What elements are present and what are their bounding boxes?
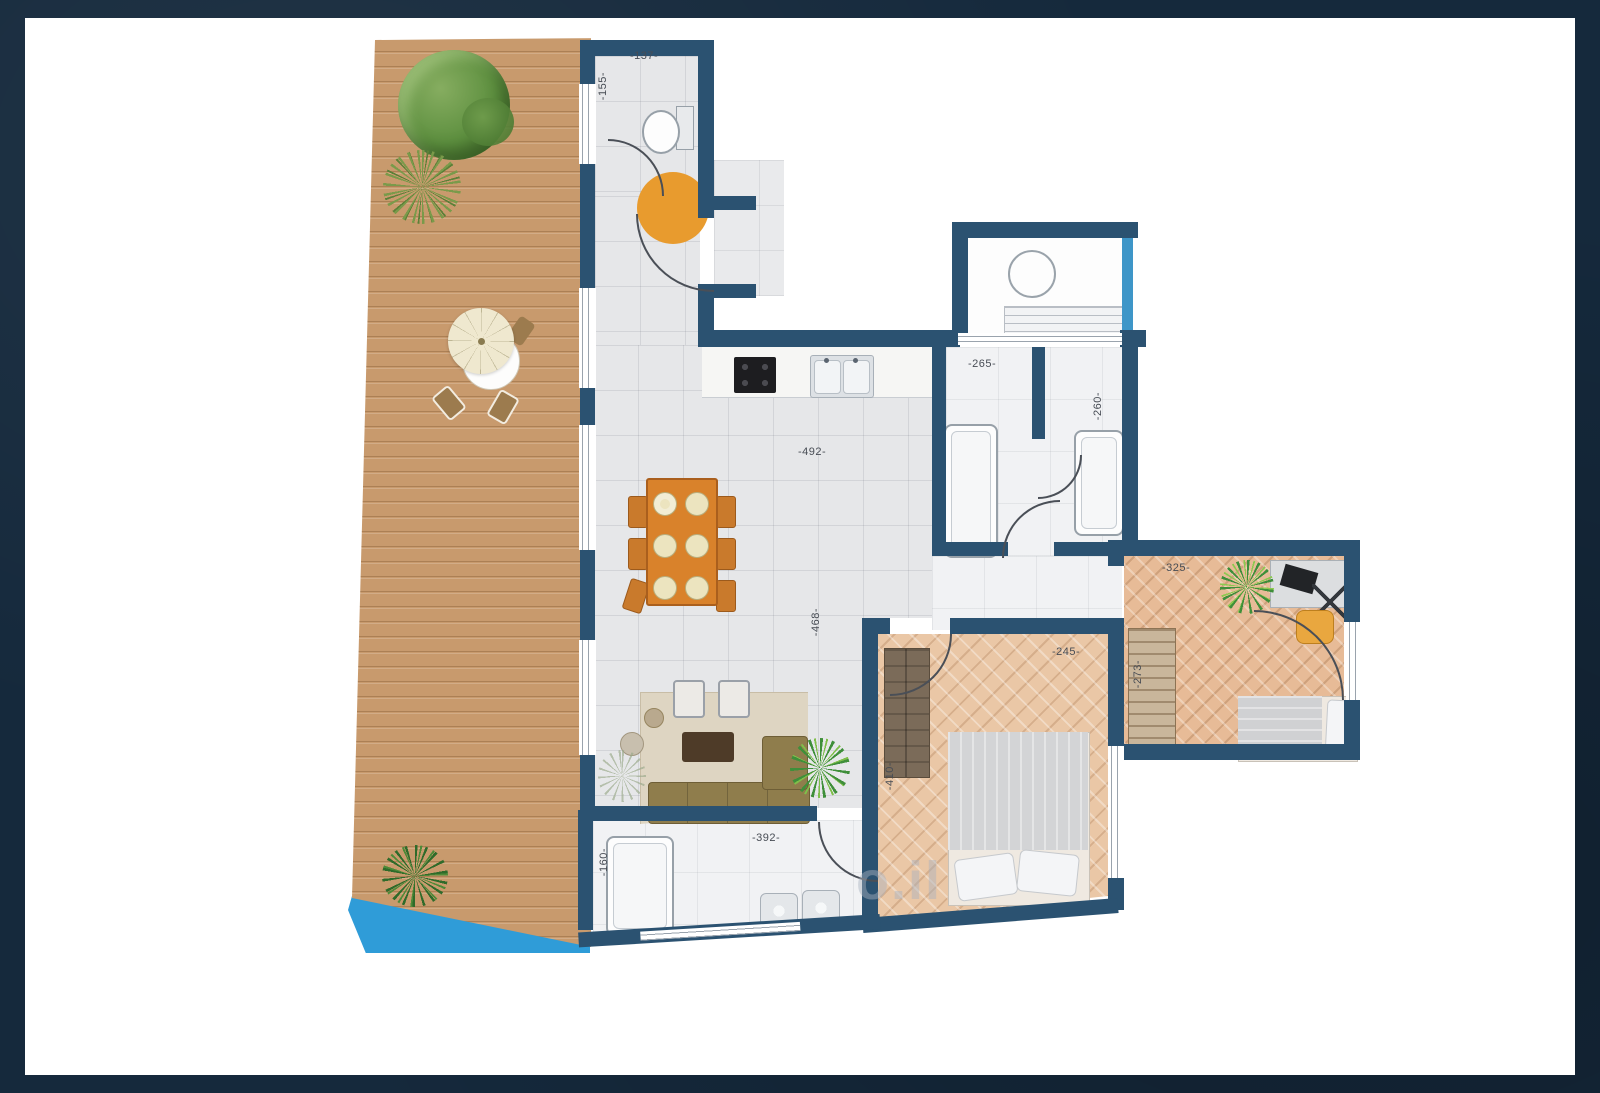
dim-label-master-width: -245- [1052,646,1080,658]
wall-segment [1108,744,1360,760]
bed-blanket [948,732,1088,850]
houseplant-icon [790,738,850,798]
palm-plant-icon [382,845,448,907]
armchair [673,680,705,718]
houseplant-icon [1220,560,1274,614]
place-setting [685,576,709,600]
toilet-icon [642,110,680,154]
wall-segment [1108,540,1360,556]
wall-segment [932,347,946,556]
dining-chair [716,538,736,570]
dim-label-living-depth: -468- [810,608,822,636]
sink-basin [814,360,841,394]
window [579,640,596,755]
dining-chair [716,580,736,612]
window [579,288,596,388]
houseplant-icon [598,750,646,802]
wall-segment [1120,330,1146,347]
wall-segment [698,40,714,218]
bathtub [944,424,998,558]
umbrella-center [478,338,485,345]
sink-basin [843,360,870,394]
place-setting [653,492,677,516]
wardrobe [1128,628,1176,750]
wall-segment [578,810,593,930]
wall-segment [714,196,756,210]
exterior-landing [714,160,784,296]
dim-label-wc-depth: -155- [597,72,609,100]
glazed-window [1122,238,1133,330]
bed-pillow [1016,849,1080,897]
wall-segment [1344,540,1360,622]
dim-label-masterbath-width: -392- [752,832,780,844]
sink-faucet [853,358,858,363]
window [1346,622,1359,700]
bathtub [1074,430,1124,536]
tree-icon [462,98,514,146]
place-setting [653,576,677,600]
dim-label-bathroom-width: -265- [968,358,996,370]
site-watermark: o.il [856,850,942,912]
window [579,84,596,164]
window [958,333,1122,345]
sink-faucet [824,358,829,363]
dining-chair [716,496,736,528]
dim-label-bedroom2-wall: -273- [1132,660,1144,688]
floor-plan-image: -137- -155- -265- -260- -492- -468- -392… [0,0,1600,1093]
dim-label-master-depth: -410- [884,762,896,790]
wall-segment [950,618,1108,634]
dim-label-bedroom2-width: -325- [1162,562,1190,574]
dim-label-wc-width: -137- [630,50,658,62]
place-setting [685,534,709,558]
dining-chair [628,496,648,528]
window [579,425,596,550]
terrace-deck [345,38,591,953]
wall-segment [1108,618,1124,746]
place-setting [685,492,709,516]
pouf [644,708,664,728]
bathtub [606,836,674,936]
wall-segment [1122,347,1138,542]
wall-segment [952,222,1138,238]
wall-segment [593,806,817,821]
wall-segment [698,330,960,347]
wall-segment [952,222,968,334]
dim-label-bathroom2-depth: -260- [1092,392,1104,420]
dining-chair [628,538,648,570]
coffee-table [682,732,734,762]
wall-segment [1032,347,1045,439]
place-setting [653,534,677,558]
grass-plant-icon [383,150,461,224]
bed-pillow [953,852,1018,902]
washing-machine-icon [1008,250,1056,298]
window [1108,746,1124,878]
wall-segment [932,542,1008,556]
cooktop-icon [734,357,776,393]
dim-label-living-width: -492- [798,446,826,458]
armchair [718,680,750,718]
dim-label-masterbath-depth: -160- [598,848,610,876]
